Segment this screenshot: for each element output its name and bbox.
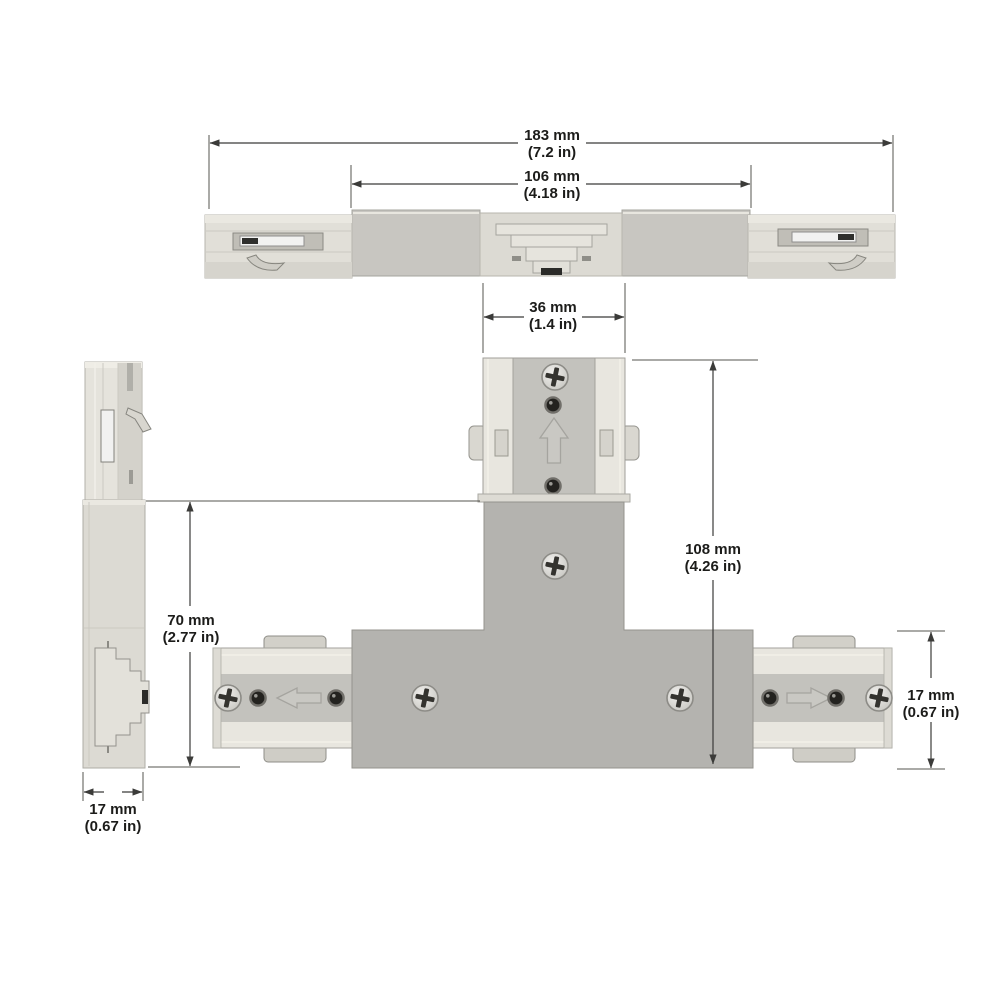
front-view — [213, 358, 892, 768]
connector-plug-step2 — [511, 235, 592, 247]
dim-stem-width-mm-label: 36 mm — [529, 299, 577, 316]
rivet-icon — [250, 690, 265, 705]
dim-side-profile-width-in-label: (0.67 in) — [85, 818, 142, 835]
rivet-icon — [828, 690, 843, 705]
phillips-screw-icon — [542, 364, 568, 390]
front-view-right-arm — [753, 648, 892, 748]
dim-side-body-height-in-label: (2.77 in) — [163, 629, 220, 646]
stem-flange — [478, 494, 630, 502]
top-view-right-track — [748, 215, 895, 278]
dim-overall-height-mm-label: 108 mm — [685, 541, 741, 558]
plug-slot — [541, 268, 562, 275]
dim-side-profile-width: 17 mm (0.67 in) — [83, 772, 143, 835]
phillips-screw-icon — [667, 685, 693, 711]
metal-contact-icon — [101, 410, 114, 462]
body-top-highlight — [83, 500, 145, 505]
plug-latch-left — [512, 256, 521, 261]
dim-overall-length-mm-label: 183 mm — [524, 127, 580, 144]
contact-slot — [838, 234, 854, 240]
rail-clip-detail — [495, 430, 508, 456]
top-view-left-track — [205, 215, 352, 278]
dim-overall-length-in-label: (7.2 in) — [528, 144, 576, 161]
phillips-screw-icon — [542, 553, 568, 579]
side-view — [83, 362, 151, 768]
front-view-left-arm — [213, 648, 352, 748]
dim-track-end-height-mm-label: 17 mm — [907, 687, 955, 704]
plug-latch-right — [582, 256, 591, 261]
top-view-center-connector — [480, 213, 622, 276]
t-connector-dimension-drawing: 183 mm (7.2 in) 106 mm (4.18 in) 36 mm (… — [0, 0, 1000, 1000]
profile-mark — [129, 470, 133, 484]
rivet-icon — [762, 690, 777, 705]
dim-center-length-mm-label: 106 mm — [524, 168, 580, 185]
phillips-screw-icon — [215, 685, 241, 711]
rivet-icon — [328, 690, 343, 705]
side-view-track-profile — [85, 362, 151, 500]
contact-slot — [242, 238, 258, 244]
phillips-screw-icon — [866, 685, 892, 711]
top-view-housing-right — [622, 210, 750, 276]
side-view-connector-body — [83, 500, 149, 768]
rail-clip-detail — [600, 430, 613, 456]
dim-stem-width-in-label: (1.4 in) — [529, 316, 577, 333]
profile-dark-streak — [127, 363, 133, 391]
drawing-canvas: 183 mm (7.2 in) 106 mm (4.18 in) 36 mm (… — [0, 0, 1000, 1000]
plug-slot — [142, 690, 148, 704]
dim-stem-width: 36 mm (1.4 in) — [483, 283, 625, 353]
dim-overall-height-in-label: (4.26 in) — [685, 558, 742, 575]
connector-plug-step1 — [496, 224, 607, 235]
top-view — [205, 210, 895, 278]
dim-center-length-in-label: (4.18 in) — [524, 185, 581, 202]
front-view-stem-arm — [483, 358, 625, 500]
top-view-housing-left — [352, 210, 480, 276]
dim-center-length: 106 mm (4.18 in) — [351, 165, 751, 208]
rivet-icon — [545, 478, 560, 493]
track-top-band — [748, 215, 895, 223]
dim-track-end-height-in-label: (0.67 in) — [903, 704, 960, 721]
dim-side-body-height-mm-label: 70 mm — [167, 612, 215, 629]
rivet-icon — [545, 397, 560, 412]
track-top-band — [205, 215, 352, 223]
dim-side-profile-width-mm-label: 17 mm — [89, 801, 137, 818]
track-shadow-band — [748, 262, 895, 278]
connector-plug-step3 — [526, 247, 577, 261]
phillips-screw-icon — [412, 685, 438, 711]
dim-track-end-height: 17 mm (0.67 in) — [897, 631, 959, 769]
